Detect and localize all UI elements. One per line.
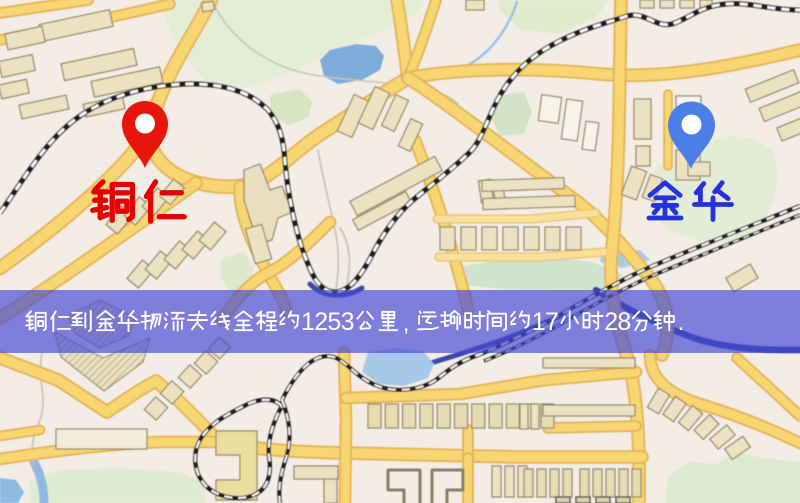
svg-text:1: 1 bbox=[301, 308, 315, 336]
svg-text:5: 5 bbox=[327, 308, 341, 336]
svg-text:3: 3 bbox=[341, 308, 355, 336]
svg-text:,: , bbox=[403, 310, 410, 337]
svg-text:1: 1 bbox=[532, 308, 546, 336]
svg-text:2: 2 bbox=[314, 308, 328, 336]
svg-text:.: . bbox=[678, 309, 685, 336]
svg-text:8: 8 bbox=[617, 308, 631, 336]
svg-text:7: 7 bbox=[545, 308, 559, 336]
svg-text:2: 2 bbox=[604, 308, 618, 336]
